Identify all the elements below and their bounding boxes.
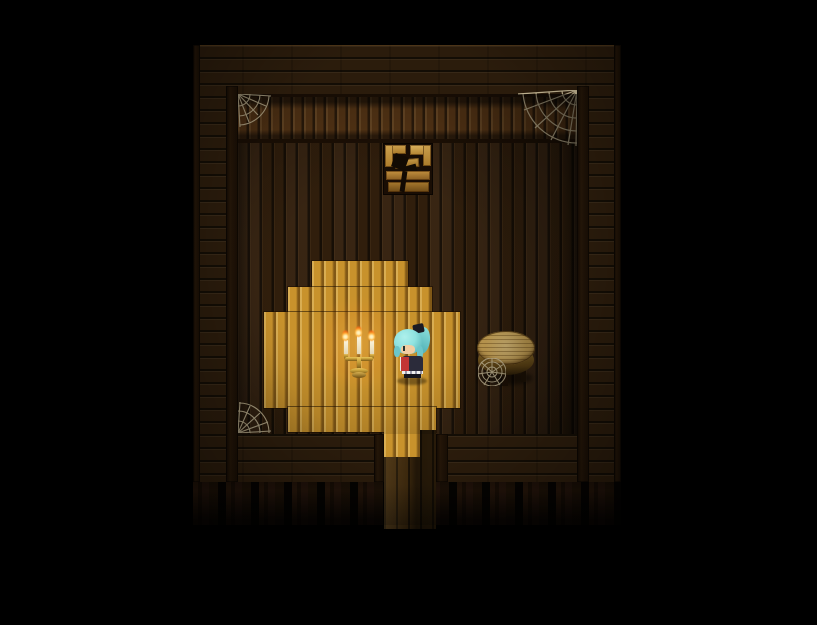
player-shadow [397, 377, 427, 385]
platform-step-south[interactable] [288, 407, 436, 432]
player-hair-lock [394, 346, 400, 357]
round-wooden-table[interactable] [475, 331, 537, 387]
path-beam-left [374, 434, 384, 482]
spiderweb-bottom-left [238, 402, 272, 433]
lit-candelabra[interactable] [337, 326, 381, 382]
broken-crate[interactable] [383, 143, 433, 195]
beam-left-outer [193, 45, 200, 482]
game-viewport[interactable] [0, 0, 817, 625]
player-feet [404, 374, 421, 378]
beam-left-inner [226, 86, 238, 482]
beam-right-inner [577, 86, 589, 482]
spiderweb-top-right [518, 90, 577, 146]
player-eye [403, 346, 405, 351]
beam-right-outer [614, 45, 621, 482]
south-exit-path-lit[interactable] [384, 430, 420, 457]
spiderweb-table-legs [478, 358, 506, 386]
player-character[interactable] [392, 324, 434, 386]
path-beam-right [436, 434, 448, 482]
player-scarf [400, 357, 409, 371]
spiderweb-top-left [238, 94, 272, 128]
platform-step-north[interactable] [312, 261, 408, 288]
